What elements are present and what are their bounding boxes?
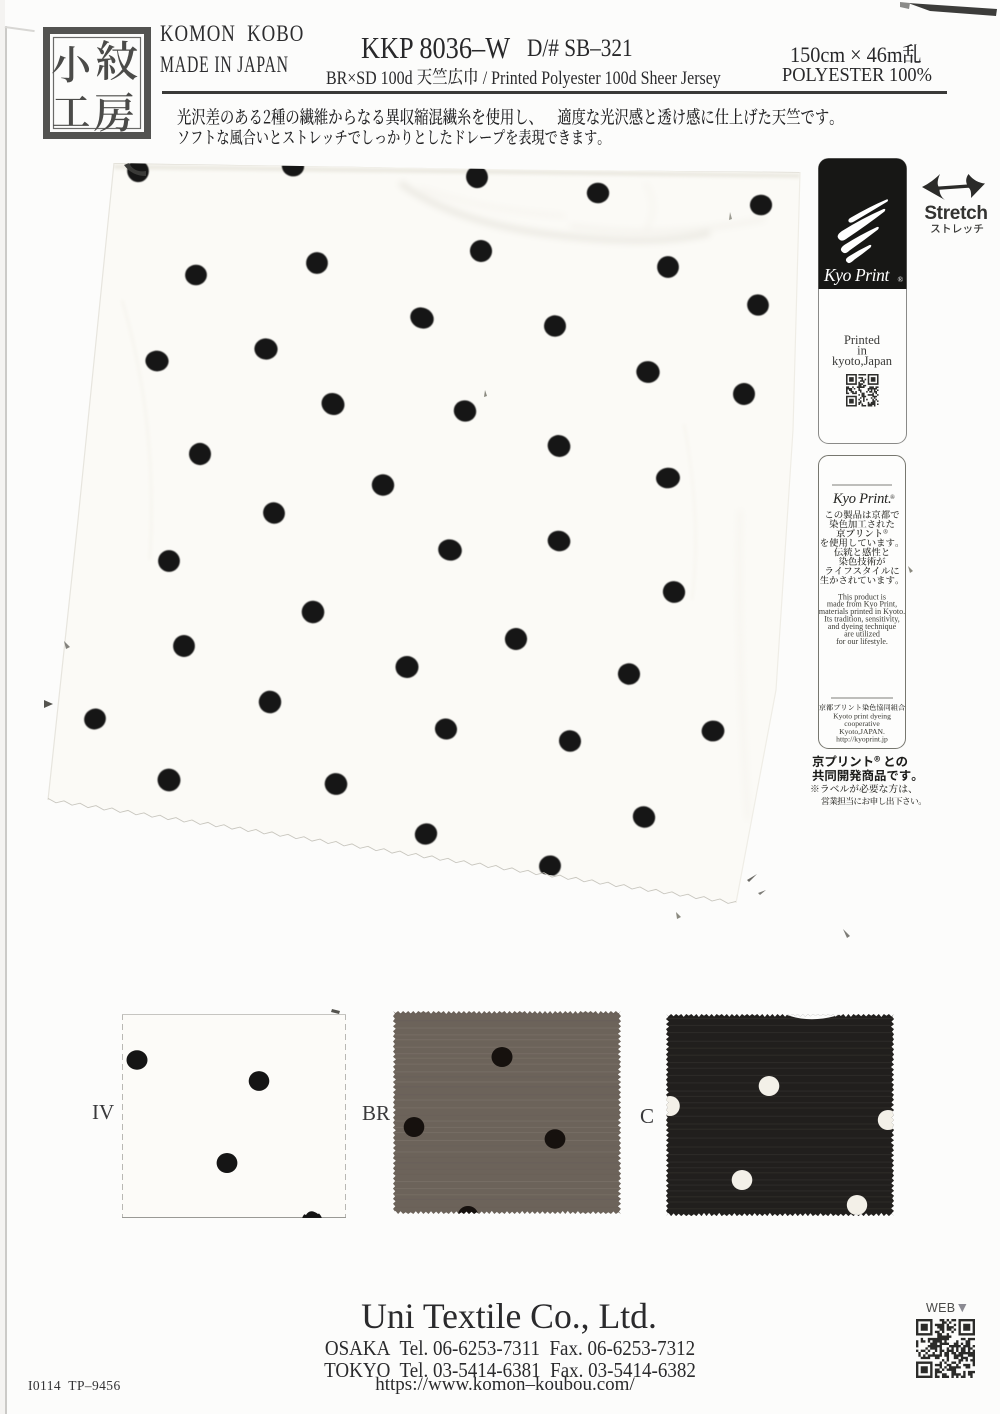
svg-text:for our lifestyle.: for our lifestyle. (836, 637, 888, 646)
svg-text:Kyo Print: Kyo Print (823, 265, 890, 285)
svg-text:Kyo Print.: Kyo Print. (832, 491, 891, 507)
svg-text:http://kyoprint.jp: http://kyoprint.jp (836, 735, 888, 744)
svg-text:kyoto,Japan: kyoto,Japan (832, 354, 893, 368)
svg-text:®: ® (898, 275, 904, 284)
svg-text:Stretch: Stretch (924, 203, 987, 224)
svg-text:®: ® (890, 494, 895, 501)
